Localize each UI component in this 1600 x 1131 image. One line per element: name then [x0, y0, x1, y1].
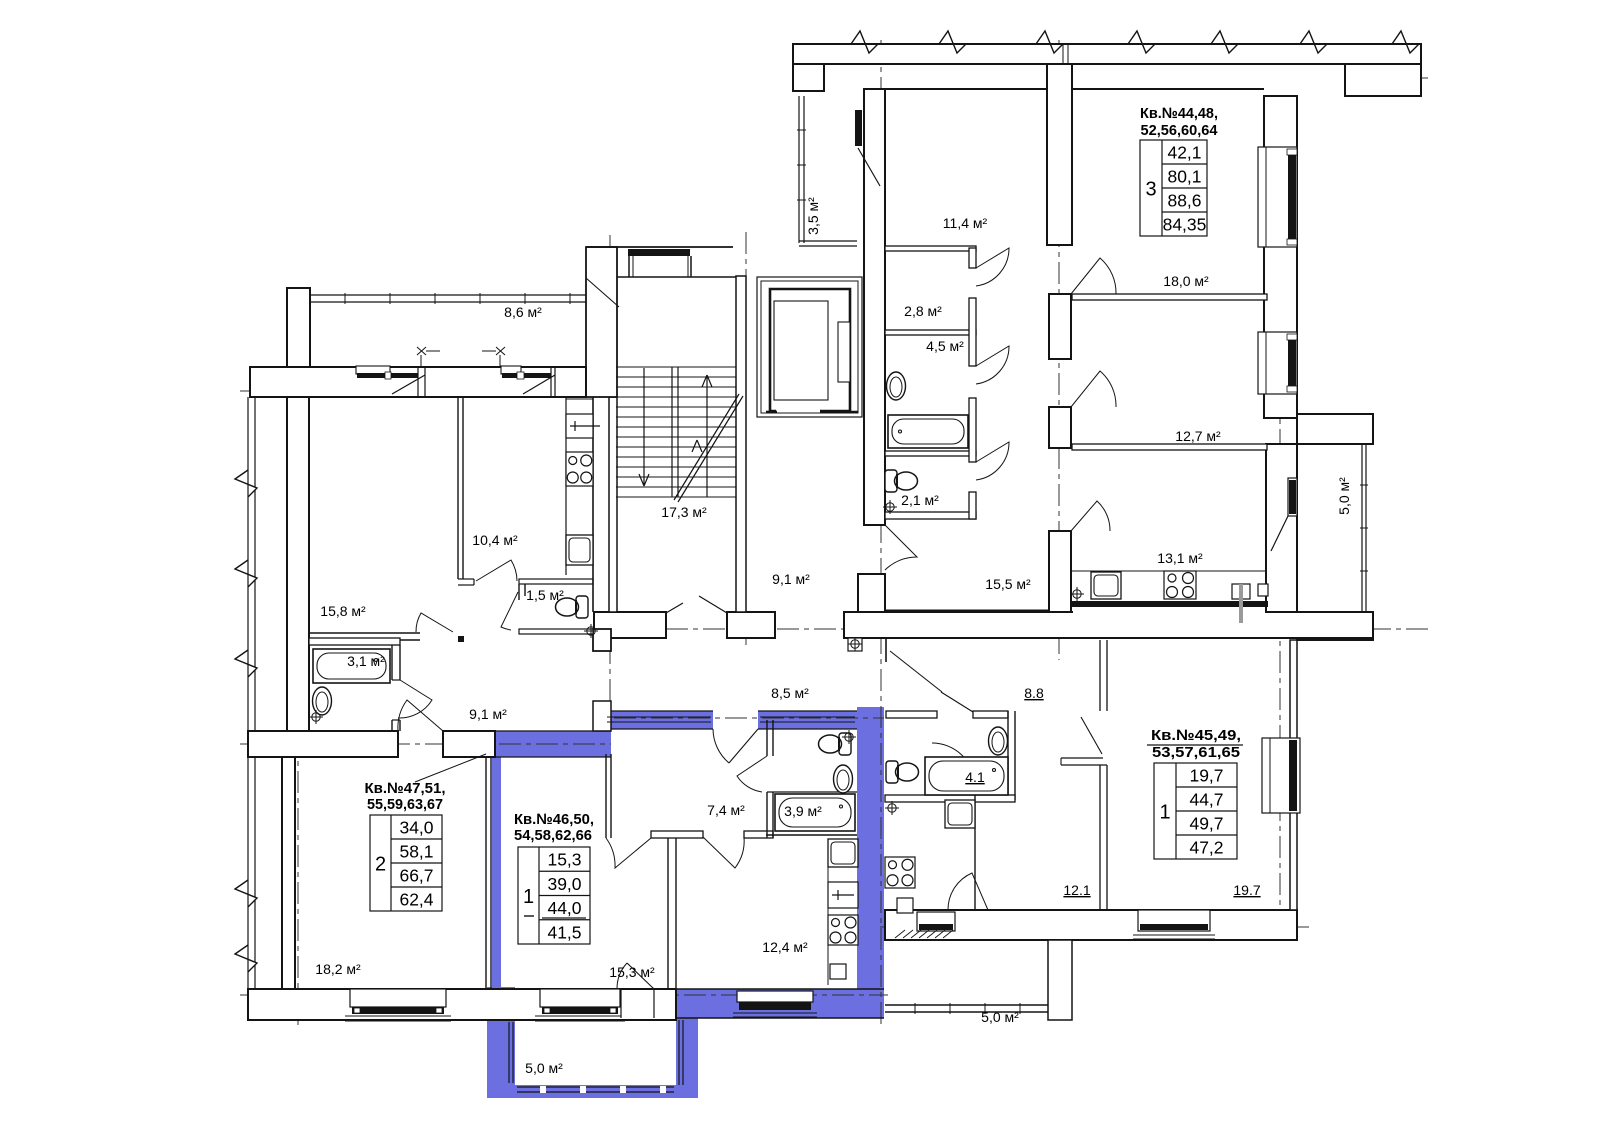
svg-text:9,1 м²: 9,1 м²: [772, 571, 810, 587]
svg-text:5,0 м²: 5,0 м²: [981, 1009, 1019, 1025]
svg-text:54,58,62,66: 54,58,62,66: [514, 827, 592, 844]
svg-text:17,3 м²: 17,3 м²: [661, 504, 707, 520]
svg-text:12,4 м²: 12,4 м²: [762, 939, 808, 955]
svg-text:Кв.№45,49,: Кв.№45,49,: [1151, 727, 1241, 744]
svg-text:66,7: 66,7: [399, 866, 433, 886]
svg-text:5,0 м²: 5,0 м²: [1336, 477, 1352, 515]
svg-text:3,1 м²: 3,1 м²: [347, 653, 385, 669]
svg-text:44,0: 44,0: [547, 898, 581, 918]
svg-text:8,5 м²: 8,5 м²: [771, 685, 809, 701]
svg-text:55,59,63,67: 55,59,63,67: [367, 796, 443, 813]
svg-text:11,4 м²: 11,4 м²: [943, 215, 988, 231]
svg-text:3: 3: [1145, 179, 1156, 201]
svg-text:2,8 м²: 2,8 м²: [904, 303, 942, 319]
svg-text:42,1: 42,1: [1167, 143, 1201, 163]
svg-text:15,3: 15,3: [547, 850, 581, 870]
svg-text:58,1: 58,1: [399, 842, 433, 862]
svg-text:9,1 м²: 9,1 м²: [469, 706, 507, 722]
svg-text:2,1 м²: 2,1 м²: [901, 492, 939, 508]
svg-text:47,2: 47,2: [1189, 838, 1223, 858]
svg-text:7,4 м²: 7,4 м²: [707, 802, 745, 818]
svg-text:Кв.№47,51,: Кв.№47,51,: [365, 780, 446, 797]
svg-text:4,5 м²: 4,5 м²: [926, 338, 964, 354]
svg-text:18,2 м²: 18,2 м²: [315, 961, 361, 977]
svg-text:2: 2: [375, 854, 386, 876]
svg-text:12,7 м²: 12,7 м²: [1175, 428, 1221, 444]
svg-text:34,0: 34,0: [399, 818, 433, 838]
svg-text:44,7: 44,7: [1189, 790, 1223, 810]
svg-text:13,1 м²: 13,1 м²: [1157, 550, 1203, 566]
svg-text:84,35: 84,35: [1163, 215, 1207, 235]
svg-text:19,7: 19,7: [1189, 766, 1223, 786]
svg-text:10,4 м²: 10,4 м²: [472, 532, 518, 548]
svg-text:8.8: 8.8: [1024, 685, 1044, 701]
svg-text:62,4: 62,4: [399, 890, 433, 910]
svg-text:1: 1: [1159, 802, 1170, 824]
svg-text:80,1: 80,1: [1167, 167, 1201, 187]
svg-text:5,0 м²: 5,0 м²: [525, 1060, 563, 1076]
svg-text:Кв.№46,50,: Кв.№46,50,: [514, 811, 594, 828]
svg-text:15,5 м²: 15,5 м²: [985, 576, 1031, 592]
svg-text:53,57,61,65: 53,57,61,65: [1152, 744, 1240, 761]
svg-text:15,3 м²: 15,3 м²: [609, 964, 655, 980]
svg-text:52,56,60,64: 52,56,60,64: [1141, 122, 1219, 139]
svg-text:3,5 м²: 3,5 м²: [805, 197, 821, 235]
svg-text:18,0 м²: 18,0 м²: [1163, 273, 1209, 289]
svg-text:41,5: 41,5: [547, 922, 581, 942]
svg-text:4.1: 4.1: [965, 769, 985, 785]
svg-text:3,9 м²: 3,9 м²: [784, 803, 822, 819]
svg-text:8,6 м²: 8,6 м²: [504, 304, 542, 320]
svg-text:15,8 м²: 15,8 м²: [320, 603, 366, 619]
svg-text:39,0: 39,0: [547, 874, 581, 894]
svg-text:1: 1: [523, 886, 534, 908]
svg-text:Кв.№44,48,: Кв.№44,48,: [1140, 105, 1218, 122]
svg-text:19.7: 19.7: [1233, 882, 1260, 898]
svg-text:88,6: 88,6: [1167, 191, 1201, 211]
svg-text:1,5 м²: 1,5 м²: [526, 587, 564, 603]
svg-text:49,7: 49,7: [1189, 814, 1223, 834]
svg-text:12.1: 12.1: [1063, 882, 1090, 898]
